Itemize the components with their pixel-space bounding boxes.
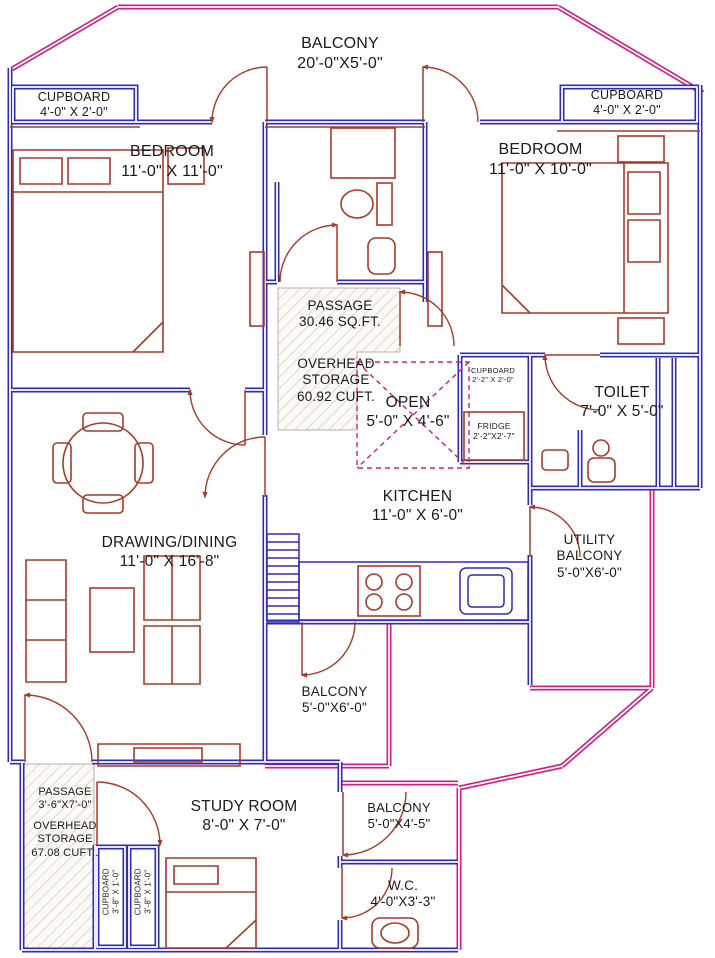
study-bed (166, 858, 256, 948)
nightstand (618, 318, 664, 344)
furniture (10, 127, 700, 948)
dresser (250, 252, 264, 326)
balcony-outline-walls (12, 7, 703, 950)
sofa-2seat-b (144, 626, 200, 684)
toilet-sink (542, 450, 568, 470)
chair (135, 443, 153, 483)
sofa-2seat (144, 556, 200, 620)
sofa-long (26, 560, 66, 682)
nightstand (168, 148, 204, 184)
door-leaves (25, 67, 600, 918)
bed-right (502, 163, 668, 313)
bath-ledge (377, 183, 392, 225)
walls (10, 68, 700, 950)
dining-table (63, 423, 143, 503)
wash-basin (368, 238, 395, 274)
coffee-table (90, 588, 134, 652)
fridge-box (464, 412, 524, 460)
nightstand (618, 136, 664, 162)
bed-left (13, 150, 163, 352)
toilet-bowl (341, 190, 373, 218)
chair (83, 495, 123, 513)
chair (53, 443, 71, 483)
shower-tray (331, 128, 395, 178)
floorplan-drawing (0, 0, 715, 958)
door-arcs (25, 67, 600, 918)
open-area-outline (357, 362, 469, 468)
chair (83, 413, 123, 431)
dresser (428, 252, 442, 326)
stove (358, 566, 420, 616)
toilet-fixture (593, 440, 609, 456)
floor-plan: BALCONY 20'-0"X5'-0" CUPBOARD 4'-0" X 2'… (0, 0, 715, 958)
